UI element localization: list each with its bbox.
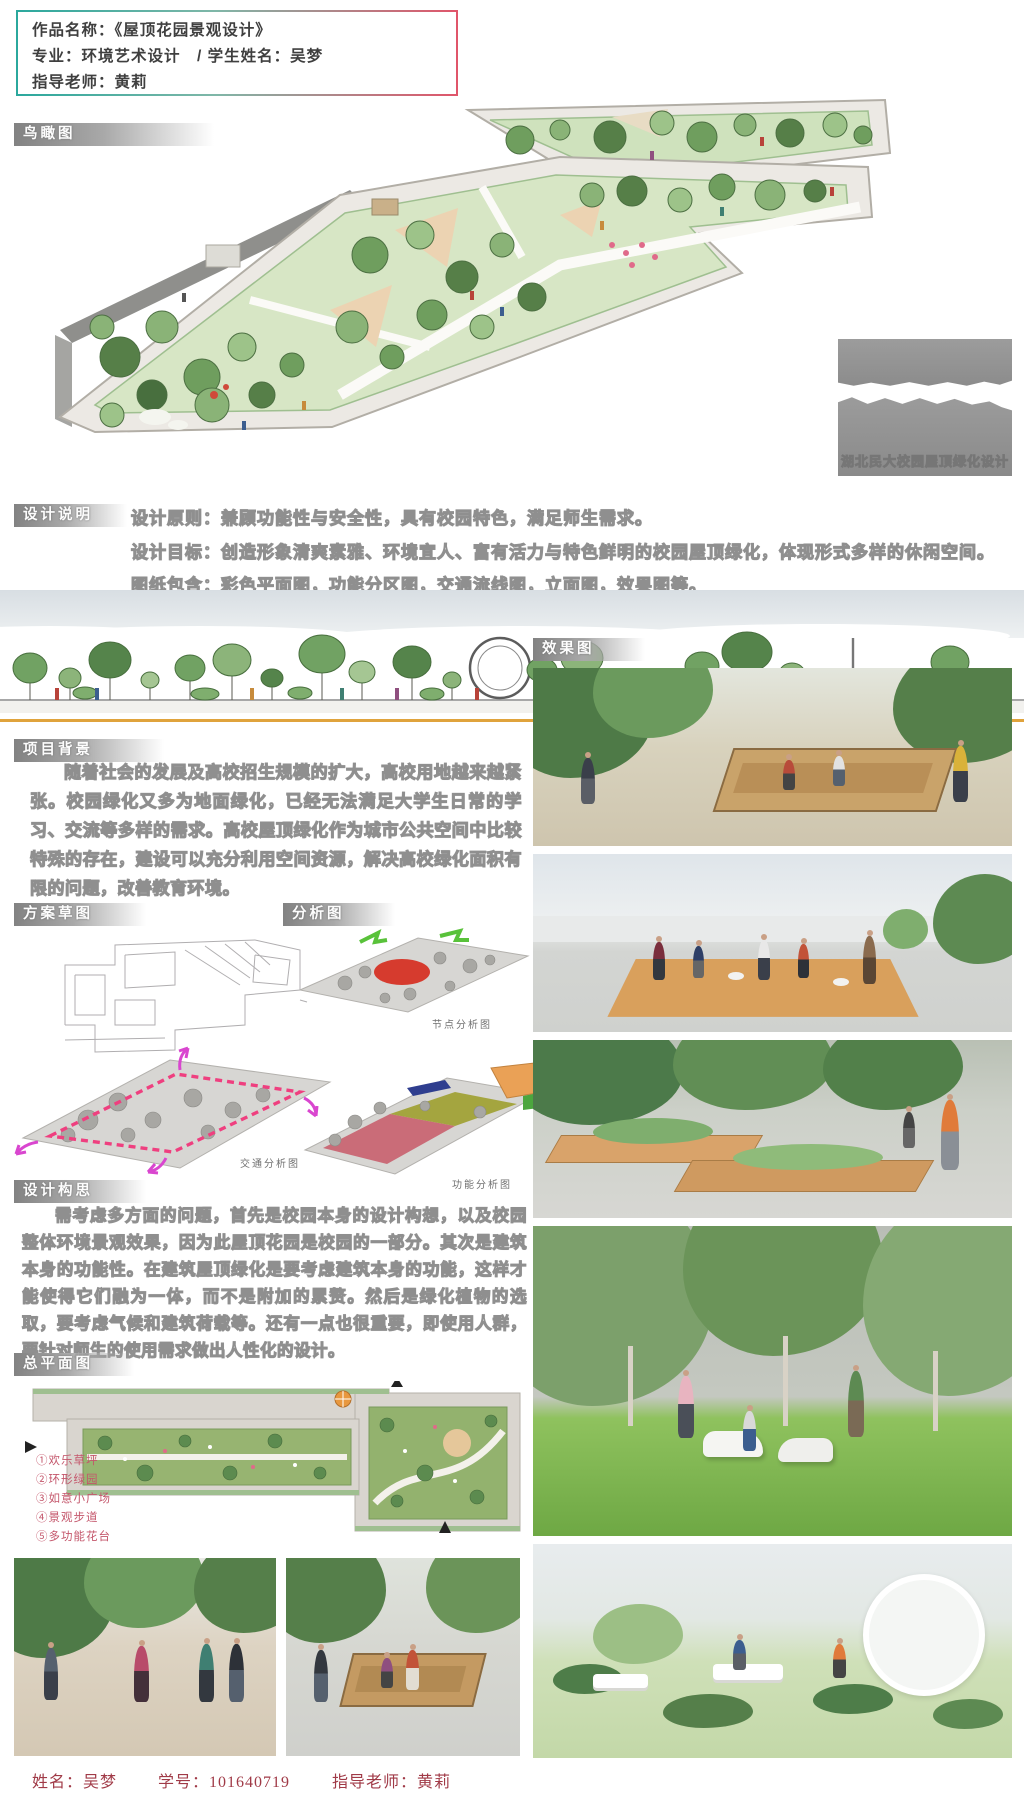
tree-mass — [426, 1558, 520, 1633]
person — [798, 944, 809, 978]
render-photo-sunken-deck — [286, 1558, 520, 1756]
tree-mass — [883, 909, 928, 949]
person — [314, 1650, 328, 1702]
sculpture-seat — [778, 1438, 833, 1462]
person — [903, 1112, 915, 1148]
person — [783, 760, 795, 790]
footer-name: 姓名：吴梦 — [32, 1768, 117, 1792]
person — [833, 1644, 846, 1678]
person — [199, 1644, 214, 1702]
person — [848, 1371, 864, 1437]
person — [758, 940, 770, 980]
tree-mass — [933, 874, 1012, 964]
legend-item: ①欢乐草坪 — [36, 1452, 111, 1471]
moon-gate — [863, 1574, 985, 1696]
section-label-analysis: 分析图 — [283, 903, 395, 926]
render-photo-plaza — [533, 854, 1012, 1032]
grass-tuft — [813, 1684, 893, 1714]
legend-item: ④景观步道 — [36, 1509, 111, 1528]
footer-student-id: 学号：101640719 — [158, 1768, 290, 1792]
work-title: 作品名称：《屋顶花园景观设计》 — [32, 18, 442, 44]
person — [953, 746, 968, 802]
tree-trunk — [783, 1336, 788, 1426]
poster-board: 作品名称：《屋顶花园景观设计》 专业：环境艺术设计 / 学生姓名：吴梦 指导老师… — [0, 0, 1024, 1812]
traffic-analysis-caption: 交通分析图 — [240, 1155, 300, 1170]
render-photo-lawn — [533, 1226, 1012, 1536]
person — [134, 1646, 149, 1702]
tree-mass — [194, 1558, 276, 1633]
legend-item: ②环形绿园 — [36, 1471, 111, 1490]
bench — [713, 1664, 783, 1680]
footer-teacher: 指导老师：黄莉 — [332, 1768, 451, 1792]
tree-mass — [286, 1558, 386, 1643]
person — [44, 1648, 58, 1700]
person — [941, 1100, 959, 1170]
render-photo-planters — [533, 1040, 1012, 1218]
section-label-master-plan: 总平面图 — [14, 1353, 134, 1376]
tree-mass — [593, 1604, 683, 1664]
person — [693, 946, 704, 978]
legend-item: ⑤多功能花台 — [36, 1528, 111, 1547]
design-principle: 设计原则：兼顾功能性与安全性，具有校园特色，满足师生需求。 — [131, 504, 653, 529]
project-background-paragraph: 随着社会的发展及高校招生规模的扩大，高校用地越来越紧张。校园绿化又多为地面绿化，… — [30, 758, 522, 903]
node-analysis-diagram — [290, 928, 535, 1036]
tree-mass — [823, 1040, 963, 1110]
section-label-sketch: 方案草图 — [14, 903, 146, 926]
node-analysis-caption: 节点分析图 — [432, 1016, 492, 1031]
title-box: 作品名称：《屋顶花园景观设计》 专业：环境艺术设计 / 学生姓名：吴梦 指导老师… — [16, 10, 458, 96]
grass-tuft — [933, 1699, 1003, 1729]
legend-item: ③如意小广场 — [36, 1490, 111, 1509]
tree-trunk — [628, 1346, 633, 1426]
design-concept-paragraph: 需考虑多方面的问题，首先是校园本身的设计构想，以及校园整体环境景观效果，因为此屋… — [22, 1203, 527, 1365]
person — [733, 1640, 746, 1670]
stool — [728, 972, 744, 980]
function-analysis-caption: 功能分析图 — [452, 1176, 512, 1191]
person — [743, 1411, 756, 1451]
person — [653, 942, 665, 980]
person — [406, 1650, 419, 1690]
grass-tuft — [663, 1694, 753, 1728]
person — [678, 1376, 694, 1438]
design-goal: 设计目标：创造形象清爽素雅、环境宜人、富有活力与特色鲜明的校园屋顶绿化，体现形式… — [131, 538, 995, 563]
advisor: 指导老师：黄莉 — [32, 70, 442, 96]
person — [229, 1644, 244, 1702]
section-label-design-concept: 设计构思 — [14, 1180, 146, 1203]
major-student: 专业：环境艺术设计 / 学生姓名：吴梦 — [32, 44, 442, 70]
tree-trunk — [933, 1351, 938, 1431]
gray-paper-block-bottom: 湖北民大校园屋顶绿化设计 — [838, 394, 1012, 476]
person — [863, 936, 876, 984]
bench — [593, 1674, 648, 1688]
tree-mass — [673, 1040, 833, 1110]
project-banner-text: 湖北民大校园屋顶绿化设计 — [838, 451, 1012, 470]
person — [381, 1658, 393, 1688]
render-photo-meadow — [533, 1544, 1012, 1758]
render-photo-deck — [533, 668, 1012, 846]
function-analysis-diagram — [295, 1052, 545, 1187]
tree-mass — [533, 1040, 683, 1125]
person — [581, 758, 595, 804]
section-label-design-notes: 设计说明 — [14, 504, 127, 527]
master-plan-legend: ①欢乐草坪 ②环形绿园 ③如意小广场 ④景观步道 ⑤多功能花台 — [36, 1452, 111, 1547]
render-photo-path-walk — [14, 1558, 276, 1756]
section-label-renders: 效果图 — [533, 638, 645, 661]
person — [833, 756, 845, 786]
stool — [833, 978, 849, 986]
